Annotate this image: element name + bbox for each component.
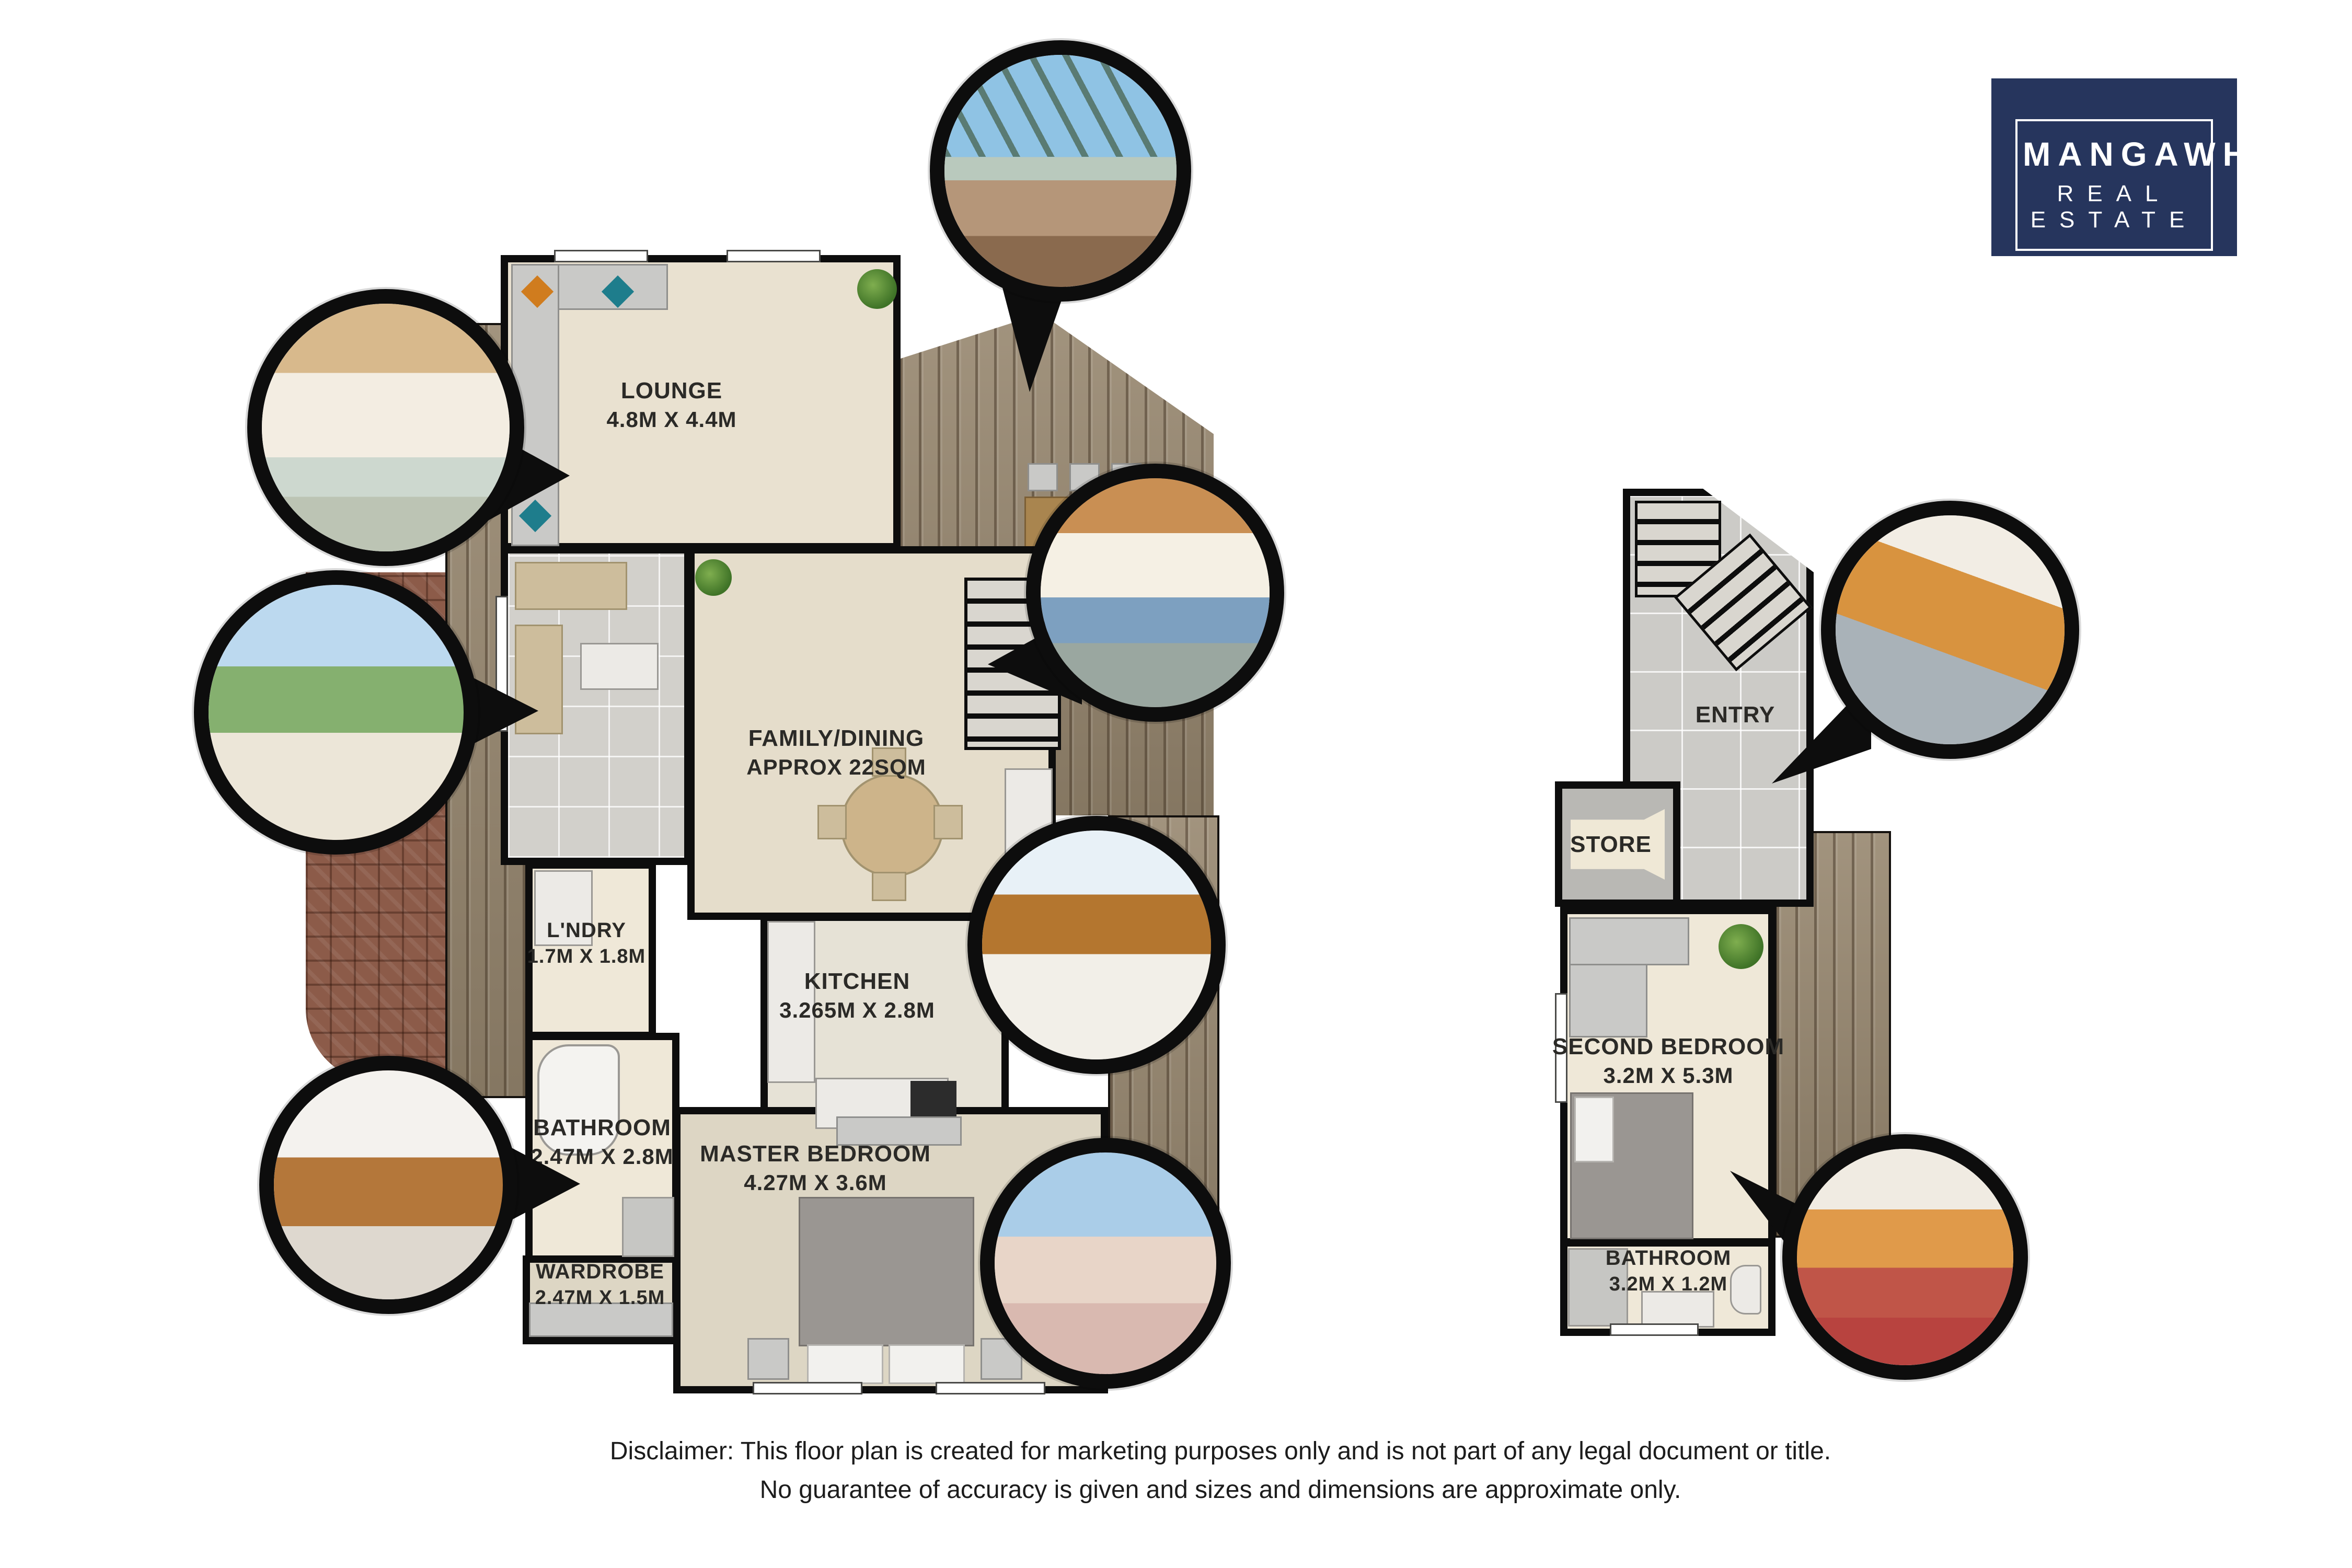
laundry-name: L'NDRY [547,919,626,942]
bedside-table [747,1338,789,1380]
window [554,250,648,262]
dining-chair [933,805,963,839]
window [727,250,821,262]
second-bedroom-dims: 3.2M X 5.3M [1552,1062,1784,1090]
wardrobe-label: WARDROBE 2.47M X 1.5M [535,1259,665,1311]
agency-logo-license: LICENSED REAA (2008) [1991,300,2237,309]
entry-stairs-photo [1821,501,2079,759]
second-bedroom-label: SECOND BEDROOM 3.2M X 5.3M [1552,1032,1784,1090]
master-bed [799,1197,974,1346]
second-bedroom-photo-image [1797,1149,2013,1365]
lounge-dims: 4.8M X 4.4M [606,406,736,434]
master-bedroom-label: MASTER BEDROOM 4.27M X 3.6M [700,1139,931,1197]
family-dining-dims: APPROX 22SQM [746,753,926,781]
store-name: STORE [1570,832,1652,857]
kitchen-label: KITCHEN 3.265M X 2.8M [779,967,935,1024]
disclaimer-line2: No guarantee of accuracy is given and si… [470,1471,1970,1509]
wardrobe-name: WARDROBE [536,1260,664,1283]
store-label: STORE [1570,830,1652,859]
conservatory-photo [194,570,478,855]
entry-stairs-photo-image [1836,515,2065,744]
lower-bathroom-dims: 3.2M X 1.2M [1606,1272,1732,1297]
entry-name: ENTRY [1696,702,1775,728]
corner-sofa [1569,917,1689,965]
sunroom-photo [247,289,524,566]
entry-label: ENTRY [1696,700,1775,730]
sunroom-photo-image [262,304,510,551]
kitchen-dims: 3.265M X 2.8M [779,996,935,1024]
outdoor-chair [1028,463,1058,491]
master-bedroom-photo [980,1138,1231,1389]
bed-pillow [807,1344,883,1384]
wicker-sofa [515,562,627,610]
laundry-dims: 1.7M X 1.8M [527,944,645,970]
second-bedroom-photo [1782,1134,2028,1380]
lounge-label: LOUNGE 4.8M X 4.4M [606,376,736,434]
bed-pillow [1574,1097,1614,1162]
bathroom-vanity-photo-image [274,1070,503,1299]
dining-chair [872,872,906,901]
round-dining-table [840,774,944,877]
agency-logo-brand-line2: REAL ESTATE [2023,181,2206,233]
kitchen-photo-image [982,831,1211,1059]
bathroom-vanity-photo [259,1056,517,1314]
coffee-table [580,643,659,690]
lounge-name: LOUNGE [621,378,722,403]
family-dining-name: FAMILY/DINING [748,725,925,751]
toilet [1730,1265,1761,1315]
agency-logo-box: MANGAWHAI REAL ESTATE [2015,119,2213,251]
window [1610,1323,1699,1336]
window [753,1382,862,1394]
potted-plant [695,559,732,596]
dining-chair [817,805,847,839]
lower-bathroom-name: BATHROOM [1606,1247,1732,1270]
lower-bathroom-label: BATHROOM 3.2M X 1.2M [1606,1245,1732,1297]
window [936,1382,1045,1394]
living-room-photo [1026,464,1284,722]
potted-plant [1719,924,1763,969]
master-bedroom-photo-image [995,1152,1216,1374]
shower-unit [622,1197,674,1257]
deck-pergola-photo [930,40,1191,302]
laundry-label: L'NDRY 1.7M X 1.8M [527,917,645,970]
second-bedroom-name: SECOND BEDROOM [1552,1034,1784,1059]
disclaimer: Disclaimer: This floor plan is created f… [470,1432,1970,1510]
wardrobe-dims: 2.47M X 1.5M [535,1285,665,1311]
deck-pergola-photo-image [944,55,1177,287]
master-bedroom-dims: 4.27M X 3.6M [700,1169,931,1197]
master-bedroom-name: MASTER BEDROOM [700,1141,931,1167]
bathroom-name: BATHROOM [533,1115,671,1140]
floor-plan-page: LOUNGE 4.8M X 4.4M FAMILY/DINING APPROX … [0,0,2352,1568]
kitchen-name: KITCHEN [804,969,910,994]
conservatory-photo-image [209,585,464,840]
agency-logo-tagline: A BRANCH OF INDEPENDENT AGENT LIMITED [1991,269,2237,294]
kitchen-photo [967,816,1226,1074]
bed-pillow [889,1344,965,1384]
agency-logo-brand-line1: MANGAWHAI [2023,135,2206,174]
potted-plant [857,269,897,309]
bathroom-label: BATHROOM 2.47M X 2.8M [531,1113,673,1171]
living-room-photo-image [1041,478,1270,707]
disclaimer-line1: Disclaimer: This floor plan is created f… [470,1432,1970,1471]
agency-logo: MANGAWHAI REAL ESTATE A BRANCH OF INDEPE… [1991,78,2237,256]
family-dining-label: FAMILY/DINING APPROX 22SQM [746,724,926,781]
bathroom-dims: 2.47M X 2.8M [531,1143,673,1171]
